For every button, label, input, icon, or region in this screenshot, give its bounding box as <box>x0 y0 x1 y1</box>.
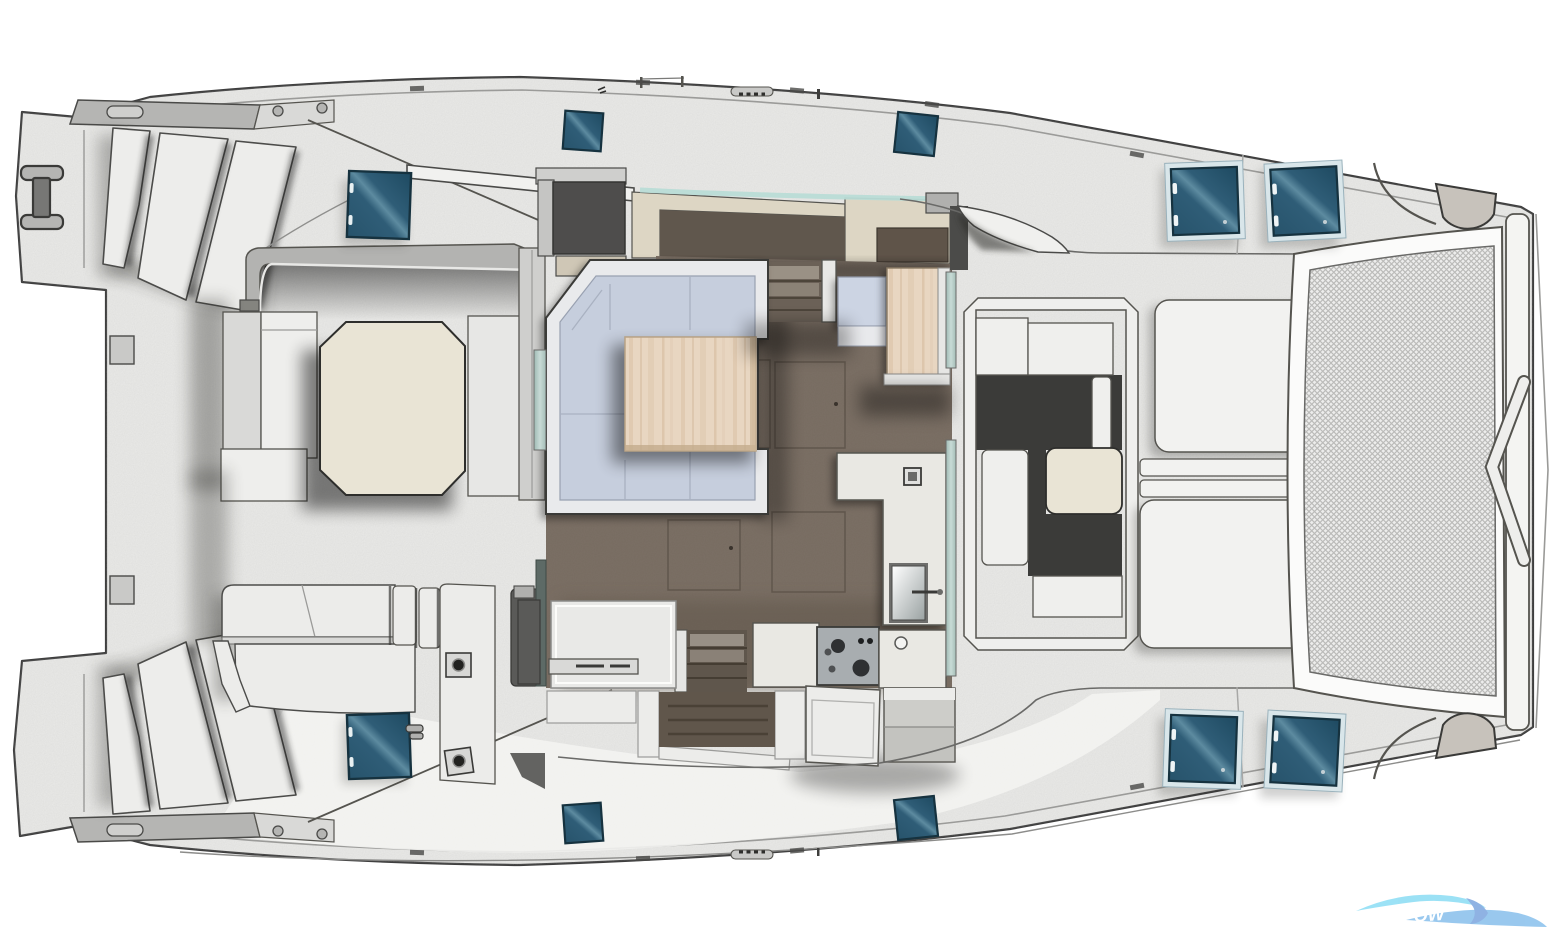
svg-text:OW: OW <box>1413 904 1447 926</box>
